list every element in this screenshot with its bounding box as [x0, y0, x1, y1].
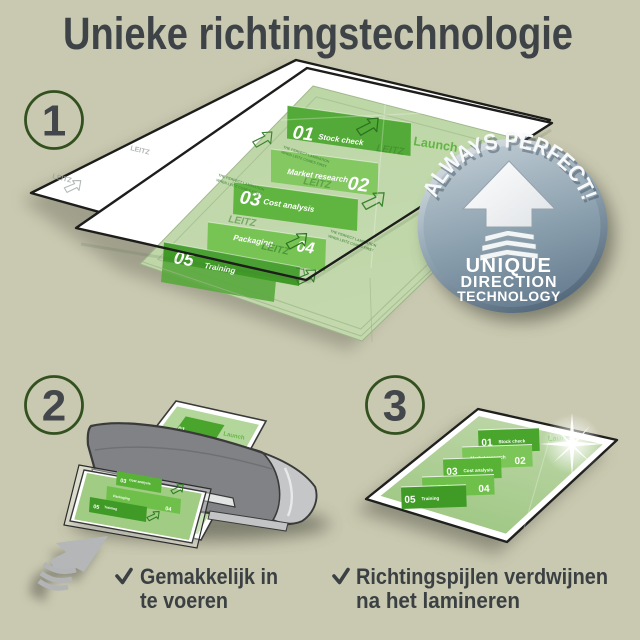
svg-text:na het lamineren: na het lamineren — [356, 588, 520, 613]
svg-text:Cost analysis: Cost analysis — [463, 467, 493, 473]
svg-text:1: 1 — [42, 97, 66, 146]
svg-text:Stock check: Stock check — [498, 438, 525, 444]
svg-text:05: 05 — [93, 504, 100, 511]
svg-text:05: 05 — [404, 494, 416, 505]
svg-text:2: 2 — [42, 382, 66, 431]
svg-text:Richtingspijlen verdwijnen: Richtingspijlen verdwijnen — [356, 564, 608, 589]
svg-text:3: 3 — [383, 382, 407, 431]
svg-text:04: 04 — [478, 484, 490, 495]
svg-text:TECHNOLOGY: TECHNOLOGY — [457, 288, 561, 304]
svg-text:Unieke richtingstechnologie: Unieke richtingstechnologie — [63, 8, 573, 59]
svg-text:02: 02 — [514, 456, 526, 467]
svg-text:te voeren: te voeren — [140, 588, 228, 613]
svg-text:Gemakkelijk in: Gemakkelijk in — [140, 564, 278, 589]
svg-text:Training: Training — [421, 496, 439, 502]
svg-text:03: 03 — [120, 478, 127, 485]
